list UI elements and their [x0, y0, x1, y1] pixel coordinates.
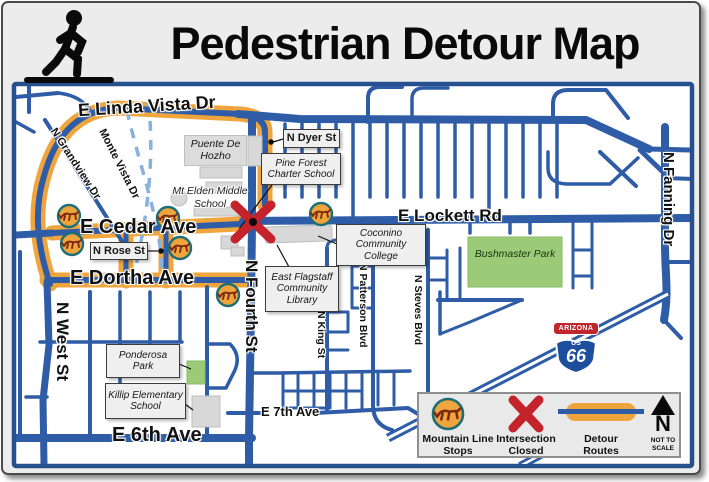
dyer-leader-dot — [268, 139, 274, 145]
legend-stop-icon — [430, 396, 466, 432]
legend-closed-label: Intersection Closed — [491, 433, 561, 457]
legend-stops-label: Mountain Line Stops — [415, 433, 501, 457]
street-label-patterson: N Patterson Blvd — [357, 263, 369, 348]
place-label-puente-de-hozho: Puente De Hozho — [184, 135, 247, 166]
place-label-mt-elden: Mt Elden Middle School — [170, 185, 250, 210]
street-label-sixth: E 6th Ave — [112, 424, 202, 447]
place-label-coconino: Coconino Community College — [336, 224, 426, 266]
street-label-dortha: E Dortha Ave — [70, 267, 194, 290]
street-label-dyer: N Dyer St — [283, 129, 340, 148]
street-label-cedar: E Cedar Ave — [80, 216, 196, 239]
place-label-killip: Killip Elementary School — [105, 383, 186, 419]
rose-leader-dot — [158, 248, 164, 254]
place-label-bushmaster: Bushmaster Park — [470, 248, 560, 261]
pedestrian-icon — [22, 8, 116, 89]
legend-detour-road-line — [558, 409, 644, 414]
street-label-seventh: E 7th Ave — [261, 404, 319, 419]
street-label-rose: N Rose St — [90, 242, 148, 260]
street-label-king: N King St — [315, 311, 327, 358]
place-label-library: East Flagstaff Community Library — [265, 266, 339, 312]
route66-shield: ARIZONA US 66 — [552, 322, 600, 376]
page-title: Pedestrian Detour Map — [116, 12, 694, 76]
place-label-ponderosa: Ponderosa Park — [106, 344, 180, 378]
legend: Mountain Line Stops Intersection Closed … — [417, 392, 681, 458]
mountain-line-stop-icon — [169, 237, 191, 259]
north-letter: N — [649, 411, 677, 437]
mountain-line-stop-icon — [217, 284, 239, 306]
street-label-lockett: E Lockett Rd — [398, 206, 502, 226]
legend-detour-label: Detour Routes — [570, 433, 632, 457]
route66-number: 66 — [552, 346, 600, 367]
legend-closed-icon — [507, 395, 545, 433]
street-label-steves: N Steves Blvd — [412, 275, 424, 345]
street-label-west: N West St — [52, 302, 72, 381]
place-label-pine-forest: Pine Forest Charter School — [261, 153, 341, 185]
street-label-fanning: N Fanning Dr — [660, 152, 677, 246]
pedestrian-detour-map: Pedestrian Detour Map — [0, 0, 709, 482]
mountain-line-stop-icon — [58, 205, 80, 227]
not-to-scale-note: NOT TO SCALE — [641, 437, 685, 453]
street-label-fourth: N Fourth St — [241, 260, 261, 353]
mountain-line-stop-icon — [310, 203, 332, 225]
